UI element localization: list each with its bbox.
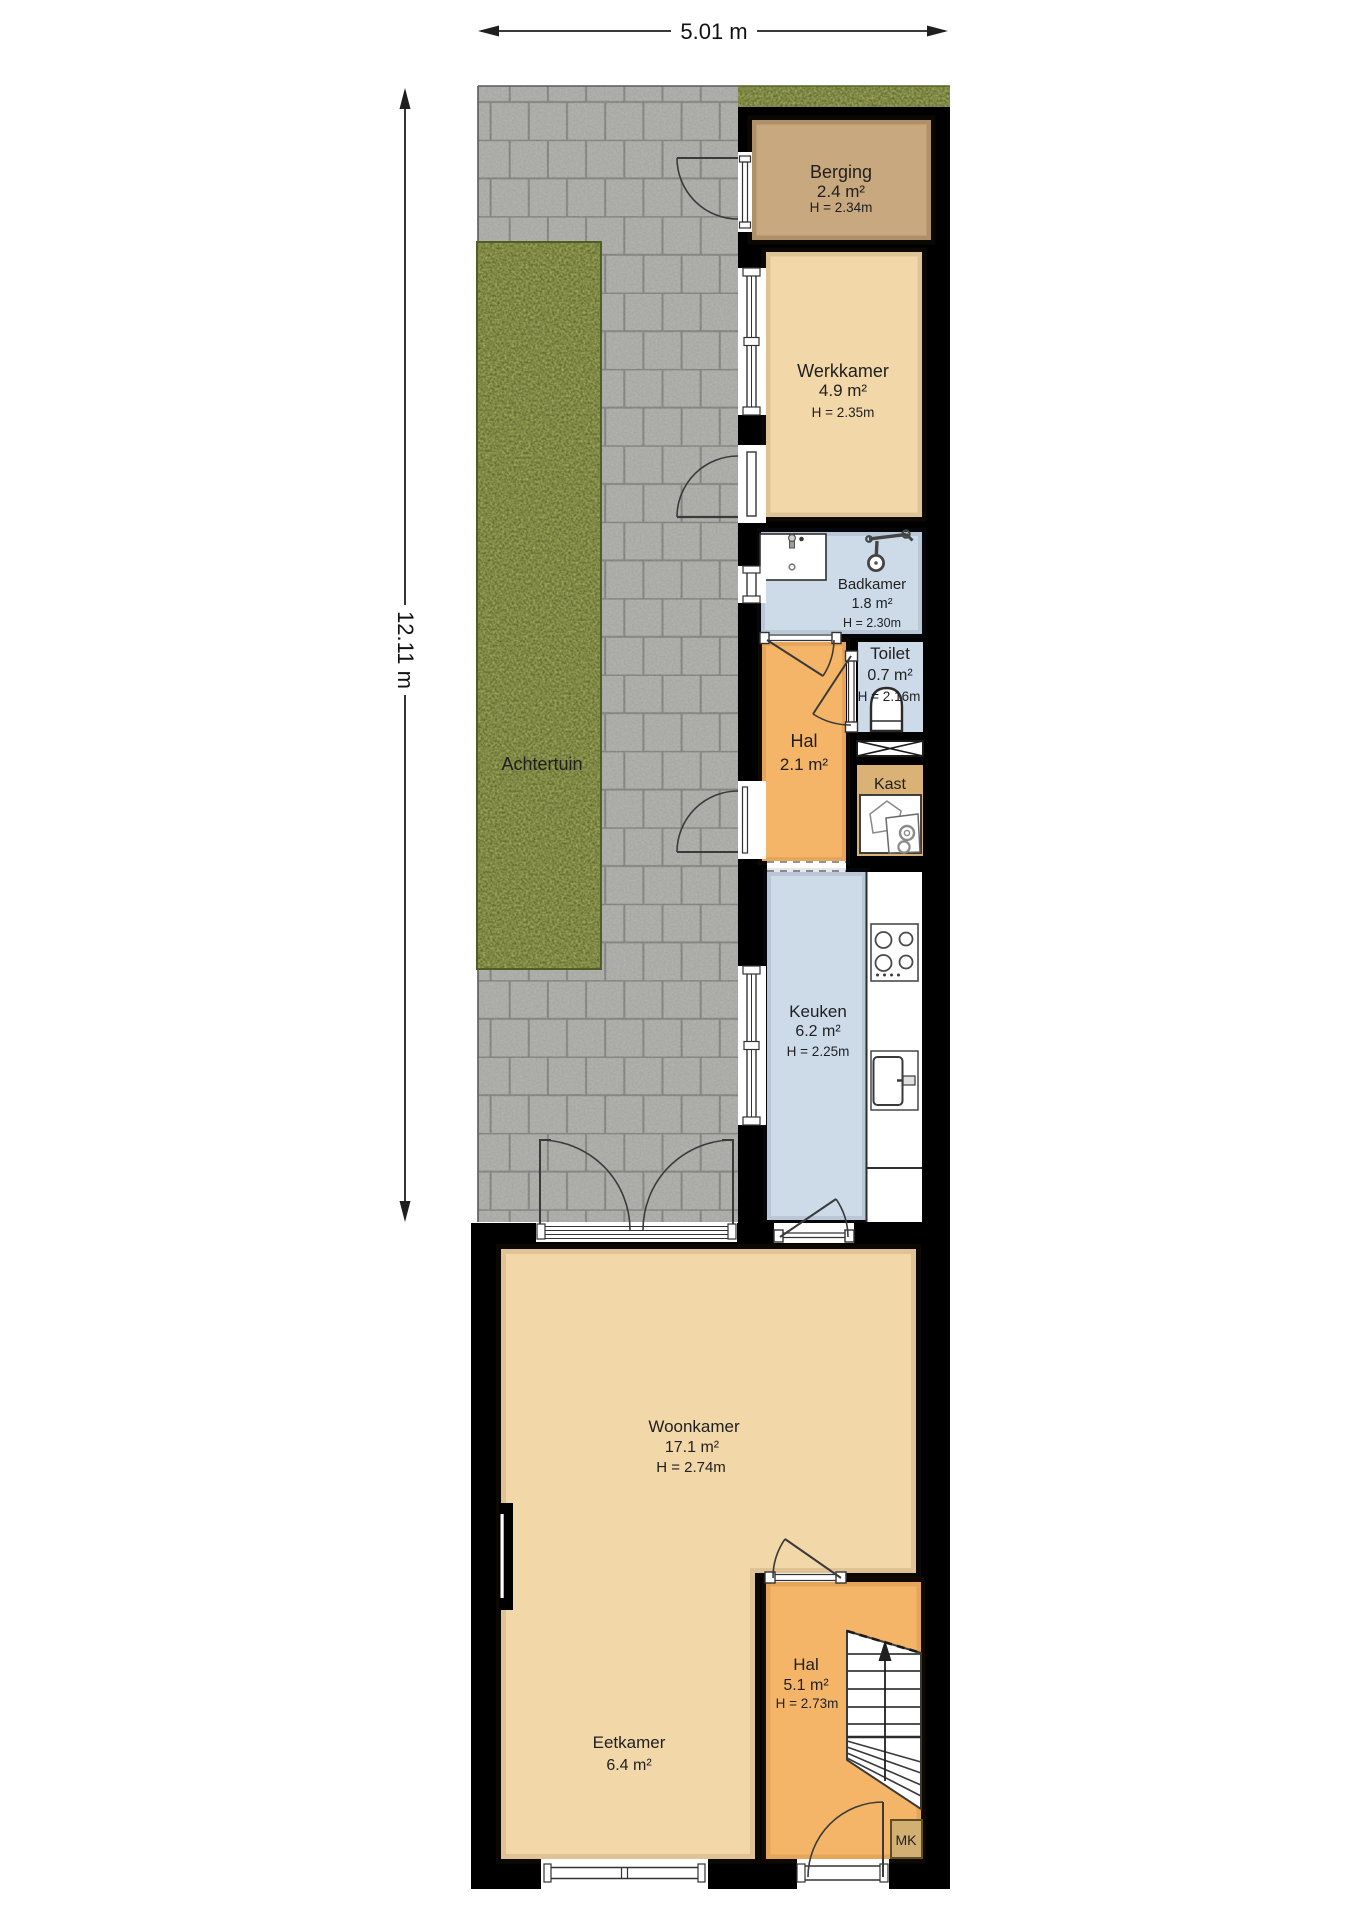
svg-text:17.1 m²: 17.1 m² bbox=[665, 1439, 720, 1456]
svg-text:6.2 m²: 6.2 m² bbox=[795, 1023, 841, 1040]
svg-text:1.8 m²: 1.8 m² bbox=[851, 596, 892, 612]
svg-text:Achtertuin: Achtertuin bbox=[501, 754, 582, 774]
svg-text:4.9 m²: 4.9 m² bbox=[819, 381, 868, 400]
svg-text:5.1 m²: 5.1 m² bbox=[783, 1677, 829, 1694]
svg-text:2.1 m²: 2.1 m² bbox=[780, 755, 829, 774]
svg-text:2.4 m²: 2.4 m² bbox=[817, 182, 866, 201]
svg-text:12.11 m: 12.11 m bbox=[393, 611, 418, 689]
svg-text:Hal: Hal bbox=[790, 731, 817, 751]
svg-text:Toilet: Toilet bbox=[870, 644, 910, 663]
svg-text:H = 2.16m: H = 2.16m bbox=[858, 689, 921, 704]
svg-text:Hal: Hal bbox=[793, 1655, 819, 1674]
svg-text:Berging: Berging bbox=[810, 162, 872, 182]
svg-text:Woonkamer: Woonkamer bbox=[648, 1417, 740, 1436]
svg-text:H = 2.73m: H = 2.73m bbox=[776, 1696, 839, 1711]
svg-text:H = 2.35m: H = 2.35m bbox=[812, 405, 875, 420]
svg-text:0.7 m²: 0.7 m² bbox=[867, 667, 913, 684]
svg-text:Keuken: Keuken bbox=[789, 1002, 847, 1021]
svg-text:Badkamer: Badkamer bbox=[838, 576, 906, 593]
svg-text:H = 2.34m: H = 2.34m bbox=[810, 200, 873, 215]
svg-text:MK: MK bbox=[896, 1832, 918, 1848]
svg-text:H = 2.74m: H = 2.74m bbox=[656, 1459, 726, 1476]
svg-text:5.01 m: 5.01 m bbox=[680, 19, 747, 44]
svg-text:Werkkamer: Werkkamer bbox=[797, 361, 889, 381]
svg-text:6.4 m²: 6.4 m² bbox=[606, 1757, 652, 1774]
svg-text:H = 2.30m: H = 2.30m bbox=[843, 616, 901, 630]
svg-text:Kast: Kast bbox=[874, 776, 907, 793]
svg-text:Eetkamer: Eetkamer bbox=[593, 1733, 666, 1752]
svg-text:H = 2.25m: H = 2.25m bbox=[787, 1044, 850, 1059]
